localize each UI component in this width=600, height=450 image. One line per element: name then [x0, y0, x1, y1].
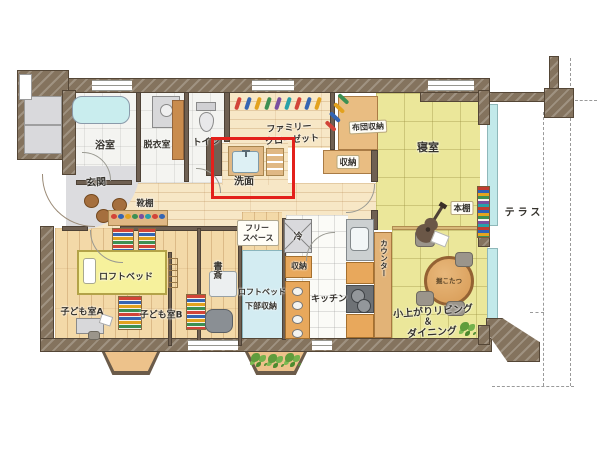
utility-meter-box — [24, 96, 62, 154]
wall-bedroom-west-a — [371, 150, 378, 182]
shoes-row — [109, 211, 167, 222]
label-kitchen: キッチン — [311, 292, 347, 305]
label-loft-bed: ロフトベッド — [99, 270, 153, 283]
label-dressing-room: 脱衣室 — [143, 138, 170, 151]
shoe-box — [138, 228, 156, 252]
wall-bottom — [40, 338, 492, 352]
label-shoe-shelf: 靴棚 — [136, 197, 153, 209]
window-kids-b — [188, 340, 238, 350]
label-terrace: テラス — [505, 204, 544, 219]
label-kitchen-storage: 収納 — [291, 261, 307, 272]
closet-clothes-row — [236, 97, 320, 110]
wall-left-bottom — [40, 226, 54, 346]
label-bedroom-storage: 収納 — [336, 155, 359, 169]
label-study: 書斎 — [211, 261, 224, 279]
kids-dresser — [118, 296, 142, 330]
label-kids-room-b: 子ども室B — [140, 308, 183, 321]
kitchen-cabinet-knobs — [285, 281, 310, 339]
bathtub — [72, 96, 130, 124]
highlight-rectangle — [211, 137, 295, 199]
label-loft-storage-2: 下部収納 — [245, 301, 277, 312]
floor-cushion — [455, 252, 473, 267]
label-bedroom: 寝室 — [417, 139, 439, 155]
wall-bath-dressing — [136, 92, 141, 182]
utility-door — [19, 74, 32, 100]
wall-toilet-closet — [224, 92, 230, 142]
label-kids-room-a: 子ども室A — [61, 305, 104, 318]
label-refrigerator: 冷 — [293, 230, 302, 243]
label-kotatsu: 掘こたつ — [436, 275, 462, 285]
kitchen-lower-cabinet — [346, 314, 374, 338]
label-free-space-2: スペース — [242, 233, 273, 244]
terrace-line — [543, 112, 544, 386]
terrace-tick — [530, 312, 544, 313]
terrace-line — [492, 386, 574, 387]
label-bathroom: 浴室 — [95, 137, 115, 152]
wall-corridor-kids-a — [62, 226, 88, 231]
label-futon-storage: 布団収納 — [349, 120, 388, 135]
terrace-line — [575, 100, 597, 101]
linen-cabinet — [172, 100, 184, 160]
window-living-east — [487, 248, 498, 328]
window-closet — [252, 80, 294, 91]
wall-right-bottom — [478, 325, 490, 345]
window-bedroom-top — [428, 80, 474, 91]
label-loft-storage-1: ロフトベッド — [238, 287, 286, 298]
label-counter: カウンター — [379, 239, 390, 277]
wall-bottom-right-diagonal — [486, 318, 540, 362]
stove — [346, 285, 374, 313]
window-kitchen-south — [312, 340, 332, 350]
wall-pillar-block — [544, 88, 574, 118]
floor-plan: 浴室 脱衣室 トイレ 洗面 ファミリー クローゼット 布団収納 収納 寝室 本棚… — [0, 0, 600, 450]
loft-bed-pillow — [83, 258, 96, 284]
kitchen-middle-cabinet — [346, 262, 374, 284]
toilet-tank — [196, 102, 216, 111]
kids-chair — [88, 331, 100, 340]
wall-dressing-toilet — [184, 92, 189, 182]
label-bookshelf: 本棚 — [450, 201, 473, 215]
wall-right-top — [478, 90, 490, 125]
kitchen-sink — [350, 227, 369, 251]
shoe-shelf-board — [108, 210, 168, 226]
label-entrance: 玄関 — [86, 173, 107, 189]
study-chair — [205, 309, 233, 333]
loft-bed-ladder — [168, 258, 178, 288]
kids-dresser — [186, 294, 206, 330]
bookshelf-books — [477, 186, 490, 238]
window-bath — [92, 80, 132, 91]
